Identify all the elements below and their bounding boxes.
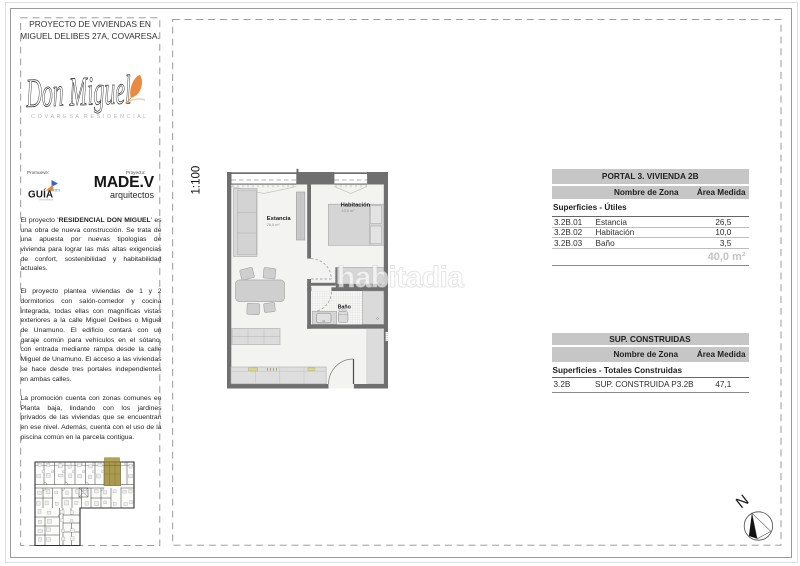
- svg-text:Estancia: Estancia: [267, 216, 292, 222]
- svg-text:26,5 m²: 26,5 m²: [267, 223, 281, 227]
- svg-text:N: N: [733, 492, 752, 512]
- svg-text:1:100: 1:100: [191, 166, 203, 195]
- svg-text:10,0 m²: 10,0 m²: [342, 209, 356, 213]
- svg-text:3,5 m²: 3,5 m²: [338, 308, 347, 312]
- svg-text:Habitación: Habitación: [341, 202, 371, 208]
